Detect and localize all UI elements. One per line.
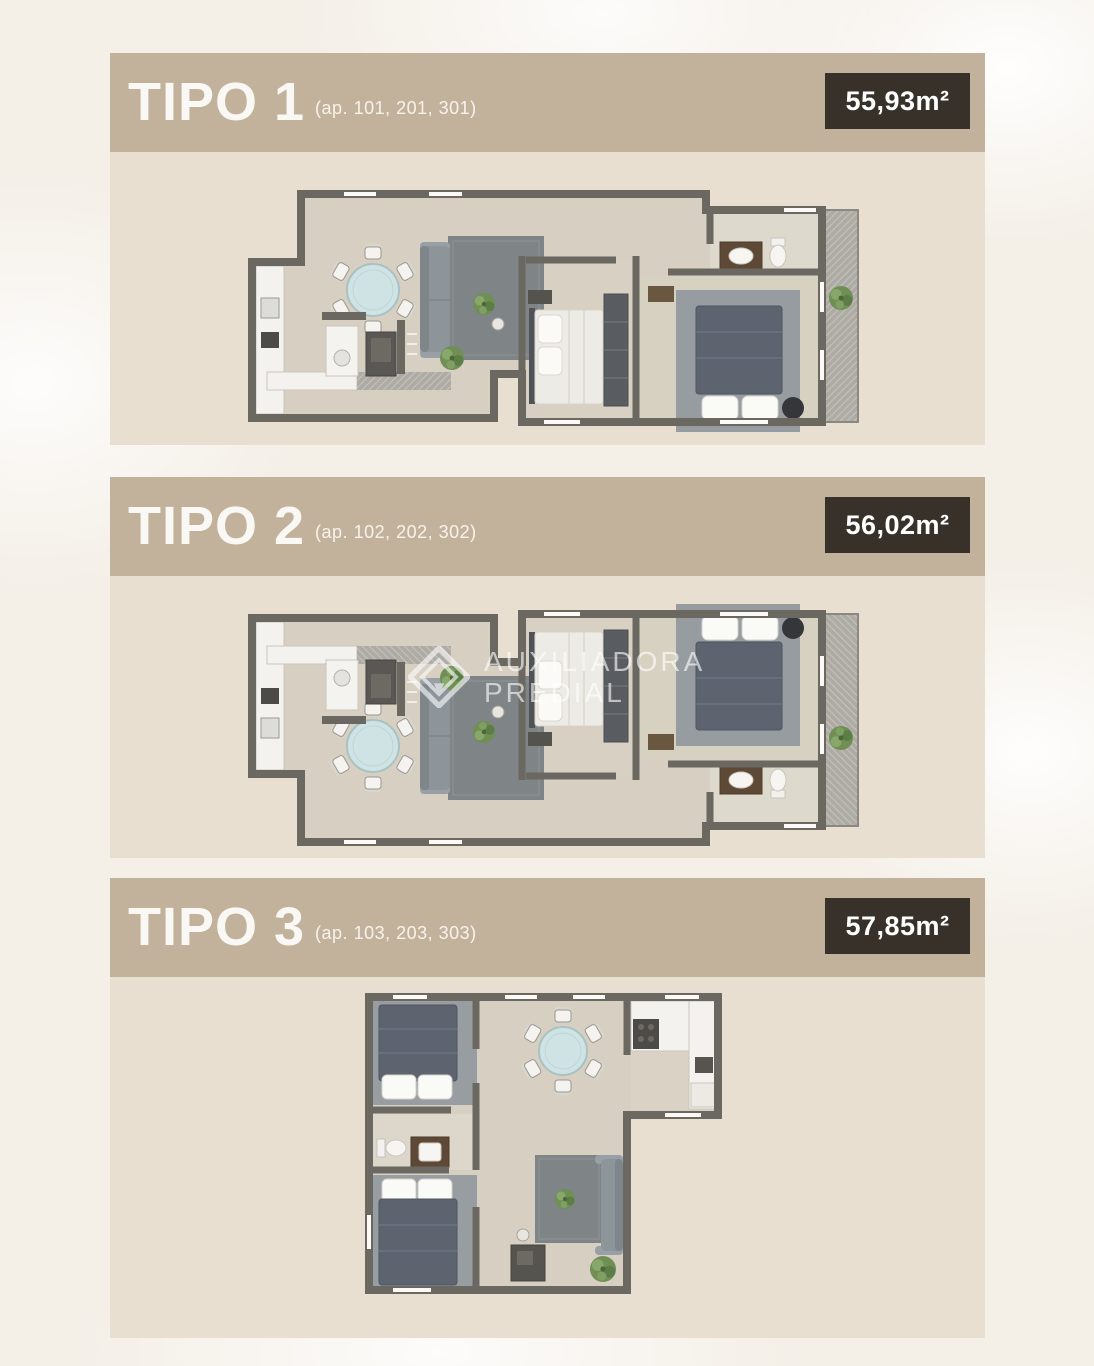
grill-cabinet <box>511 1245 545 1281</box>
floorplan-tipo-2 <box>244 604 864 854</box>
floorplan-tipo-1 <box>244 182 864 432</box>
area-badge: 57,85m² <box>825 898 970 954</box>
panel-tipo-2: TIPO 2 (ap. 102, 202, 302) 56,02m² AUXIL… <box>110 477 985 858</box>
panel-tipo-1-body <box>110 152 985 445</box>
panel-title: TIPO 3 <box>128 878 305 977</box>
panel-tipo-1-header: TIPO 1 (ap. 101, 201, 301) 55,93m² <box>110 53 985 152</box>
vent <box>517 1229 529 1241</box>
panel-units: (ap. 102, 202, 302) <box>315 522 477 543</box>
panel-units: (ap. 101, 201, 301) <box>315 98 477 119</box>
bedroom-2-bed <box>379 1179 457 1285</box>
area-badge: 55,93m² <box>825 73 970 129</box>
floorplan-tipo-3 <box>365 993 725 1298</box>
panel-tipo-1: TIPO 1 (ap. 101, 201, 301) 55,93m² <box>110 53 985 445</box>
panel-tipo-3: TIPO 3 (ap. 103, 203, 303) 57,85m² <box>110 878 985 1338</box>
panel-tipo-2-header: TIPO 2 (ap. 102, 202, 302) 56,02m² <box>110 477 985 576</box>
panel-tipo-2-body: AUXILIADORA PREDIAL <box>110 576 985 858</box>
area-badge: 56,02m² <box>825 497 970 553</box>
panel-title: TIPO 2 <box>128 477 305 576</box>
panel-tipo-3-header: TIPO 3 (ap. 103, 203, 303) 57,85m² <box>110 878 985 977</box>
panel-units: (ap. 103, 203, 303) <box>315 923 477 944</box>
panel-tipo-3-body <box>110 977 985 1338</box>
bedroom-1-bed <box>379 1005 457 1099</box>
floorplan-flyer: TIPO 1 (ap. 101, 201, 301) 55,93m² <box>0 0 1094 1366</box>
panel-title: TIPO 1 <box>128 53 305 152</box>
